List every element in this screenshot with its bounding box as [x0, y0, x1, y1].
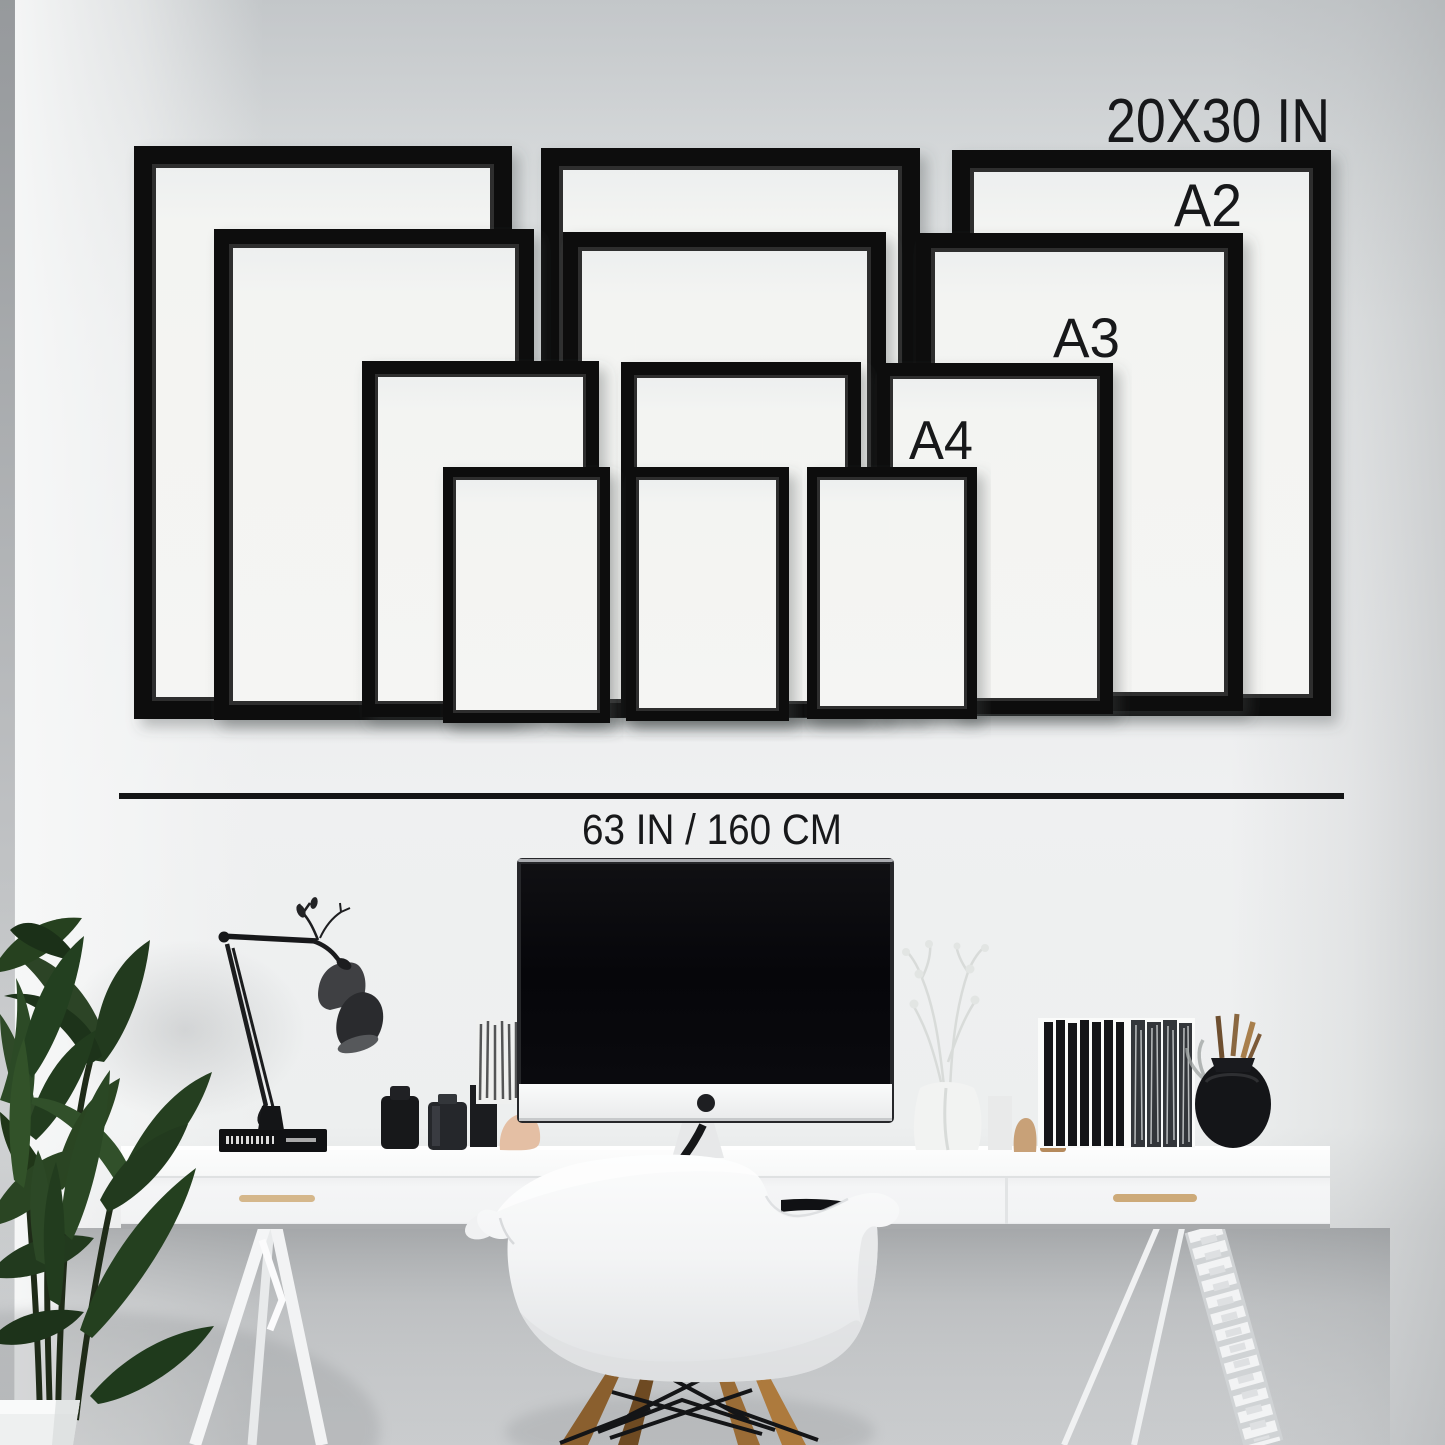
- svg-text:20X30 IN: 20X30 IN: [1106, 87, 1330, 156]
- svg-text:A4: A4: [909, 409, 973, 471]
- svg-text:A3: A3: [1053, 306, 1120, 369]
- svg-text:A2: A2: [1174, 172, 1242, 239]
- svg-text:63 IN / 160 CM: 63 IN / 160 CM: [582, 806, 842, 854]
